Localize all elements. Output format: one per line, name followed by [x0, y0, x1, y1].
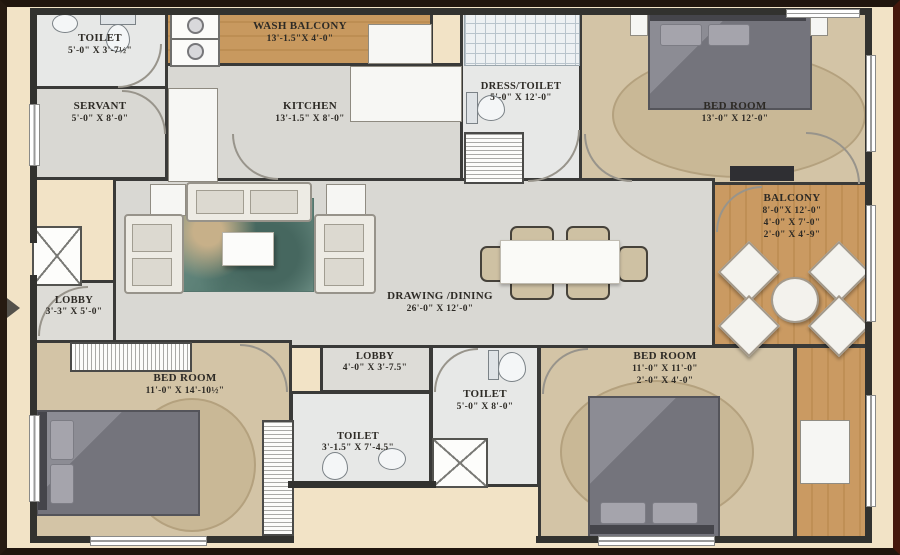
room-name: BALCONY	[716, 192, 868, 206]
sofa-single-right	[314, 214, 376, 294]
room-name: LOBBY	[320, 350, 430, 363]
label-toilet-bottom: TOILET 5'-0" X 8'-0"	[424, 388, 546, 414]
dining-chair	[618, 246, 648, 282]
shower-area	[464, 12, 580, 66]
window-balcony-br-right	[866, 395, 876, 507]
floor-plan: TOILET 5'-0" X 3'-7½" SERVANT 5'-0" X 8'…	[0, 0, 900, 555]
corner-table	[326, 184, 366, 216]
bed	[36, 410, 200, 516]
toilet-wc-bowl	[322, 452, 348, 480]
wall-bottom-toilets	[288, 481, 436, 488]
entry-arrow-icon	[3, 295, 20, 321]
window-bedroom-bl	[29, 415, 40, 502]
room-dims: 5'-0" X 8'-0"	[32, 114, 168, 126]
window-bedroom-bl-bottom	[90, 536, 207, 546]
room-name: DRAWING /DINING	[330, 290, 550, 304]
room-name: TOILET	[32, 32, 168, 46]
sofa-cushion	[324, 224, 364, 252]
room-dims: 3'-1.5" X 7'-4.5"	[292, 443, 424, 455]
label-dress-toilet: DRESS/TOILET 5'-0" X 12'-0"	[452, 80, 590, 105]
label-lobby-left: LOBBY 3'-3" X 5'-0"	[34, 294, 114, 319]
toilet-wc-bowl	[498, 352, 526, 382]
label-toilet-mid: TOILET 3'-1.5" X 7'-4.5"	[292, 430, 424, 455]
wardrobe-niche	[262, 420, 294, 536]
toilet-basin	[52, 14, 78, 33]
room-dims: 26'-0" X 12'-0"	[330, 304, 550, 316]
window-bedroom-tr-top	[786, 9, 860, 18]
bed-pillow	[600, 502, 646, 524]
room-dims: 4'-0" X 3'-7.5"	[320, 363, 430, 375]
dining-table	[500, 240, 620, 284]
sofa-cushion	[132, 258, 172, 286]
wardrobe	[730, 166, 794, 181]
room-dims: 11'-0" X 11'-0"	[560, 364, 770, 376]
dress-closet	[464, 132, 524, 184]
room-dims: 4'-0" X 7'-0"	[716, 218, 868, 230]
bed-pillow	[652, 502, 698, 524]
label-servant: SERVANT 5'-0" X 8'-0"	[32, 100, 168, 126]
room-dims: 2'-0" X 4'-0"	[560, 376, 770, 388]
room-name: WASH BALCONY	[180, 20, 420, 34]
label-bedroom-br: BED ROOM 11'-0" X 11'-0" 2'-0" X 4'-0"	[560, 350, 770, 388]
duct-shaft	[432, 438, 488, 488]
sofa-cushion	[324, 258, 364, 286]
wardrobe-shelves	[70, 342, 192, 372]
balcony-ledge	[800, 420, 850, 484]
sofa-two-seater	[186, 182, 312, 222]
label-bedroom-tr: BED ROOM 13'-0" X 12'-0"	[620, 100, 850, 126]
room-name: SERVANT	[32, 100, 168, 114]
room-name: TOILET	[424, 388, 546, 402]
window-bedroom-br-bottom	[598, 536, 715, 546]
bedside-table	[630, 12, 648, 36]
room-dims: 13'-0" X 12'-0"	[620, 114, 850, 126]
sofa-cushion	[250, 190, 298, 214]
bed-pillow	[660, 24, 702, 46]
room-dims: 5'-0" X 8'-0"	[424, 402, 546, 414]
bed	[648, 10, 812, 110]
room-name: TOILET	[292, 430, 424, 443]
bed-pillow	[708, 24, 750, 46]
room-dims: 2'-0" X 4'-9"	[716, 230, 868, 242]
label-kitchen: KITCHEN 13'-1.5" X 8'-0"	[200, 100, 420, 126]
room-name: DRESS/TOILET	[452, 80, 590, 93]
bed-pillow	[50, 464, 74, 504]
room-dims: 5'-0" X 3'-7½"	[32, 46, 168, 58]
label-balcony: BALCONY 8'-0"X 12'-0" 4'-0" X 7'-0" 2'-0…	[716, 192, 868, 241]
room-dims: 3'-3" X 5'-0"	[34, 307, 114, 319]
room-dims: 11'-0" X 14'-10½"	[70, 386, 300, 398]
room-dims: 13'-1.5" X 8'-0"	[200, 114, 420, 126]
duct-shaft	[32, 226, 82, 286]
room-name: BED ROOM	[560, 350, 770, 364]
bed	[588, 396, 720, 540]
label-bedroom-bl: BED ROOM 11'-0" X 14'-10½"	[70, 372, 300, 398]
room-dims: 5'-0" X 12'-0"	[452, 93, 590, 105]
label-drawing-dining: DRAWING /DINING 26'-0" X 12'-0"	[330, 290, 550, 316]
balcony-round-table	[771, 277, 819, 323]
sofa-cushion	[132, 224, 172, 252]
sofa-single-left	[124, 214, 184, 294]
room-dims: 13'-1.5"X 4'-0"	[180, 34, 420, 46]
room-name: KITCHEN	[200, 100, 420, 114]
corner-table	[150, 184, 186, 216]
label-wash-balcony: WASH BALCONY 13'-1.5"X 4'-0"	[180, 20, 420, 46]
window-bedroom-tr-right	[866, 55, 876, 152]
label-lobby-mid: LOBBY 4'-0" X 3'-7.5"	[320, 350, 430, 375]
label-toilet-tl: TOILET 5'-0" X 3'-7½"	[32, 32, 168, 58]
room-name: BED ROOM	[620, 100, 850, 114]
bed-headboard	[590, 525, 714, 534]
coffee-table	[222, 232, 274, 266]
bed-pillow	[50, 420, 74, 460]
wall-top	[30, 8, 872, 15]
room-dims: 8'-0"X 12'-0"	[716, 206, 868, 218]
sofa-cushion	[196, 190, 244, 214]
room-name: BED ROOM	[70, 372, 300, 386]
room-name: LOBBY	[34, 294, 114, 307]
